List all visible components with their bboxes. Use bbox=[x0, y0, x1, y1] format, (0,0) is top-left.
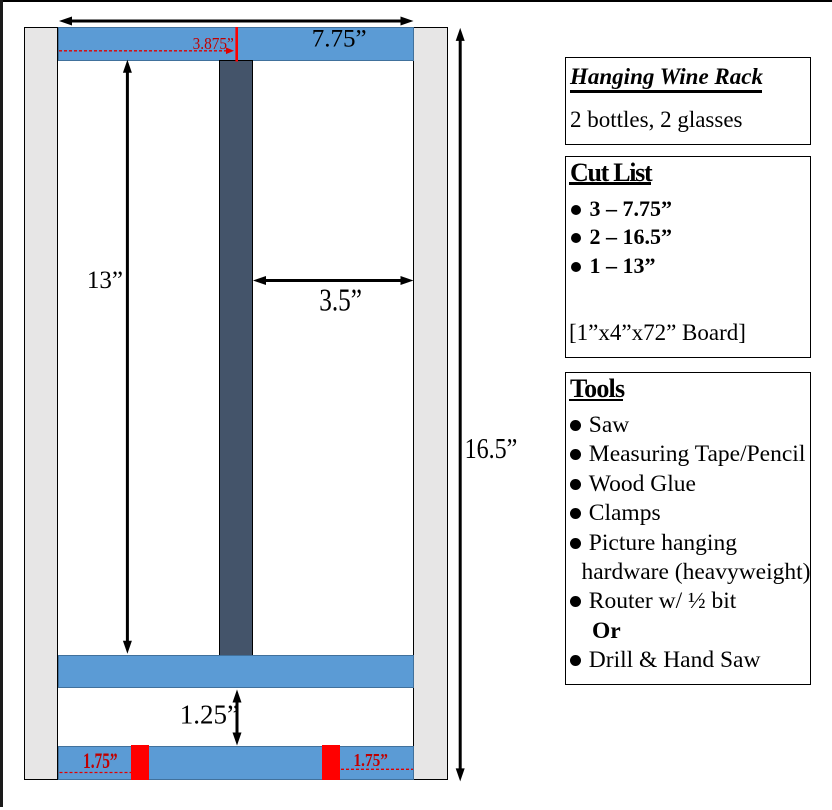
svg-text:13”: 13” bbox=[87, 267, 123, 294]
svg-text:1.25”: 1.25” bbox=[180, 699, 239, 729]
svg-text:16.5”: 16.5” bbox=[465, 432, 518, 465]
svg-text:1.75”: 1.75” bbox=[83, 749, 118, 773]
svg-text:3.875”: 3.875” bbox=[193, 35, 234, 53]
svg-text:7.75”: 7.75” bbox=[312, 26, 367, 53]
svg-text:3.5”: 3.5” bbox=[319, 283, 362, 319]
svg-text:1.75”: 1.75” bbox=[354, 750, 388, 770]
